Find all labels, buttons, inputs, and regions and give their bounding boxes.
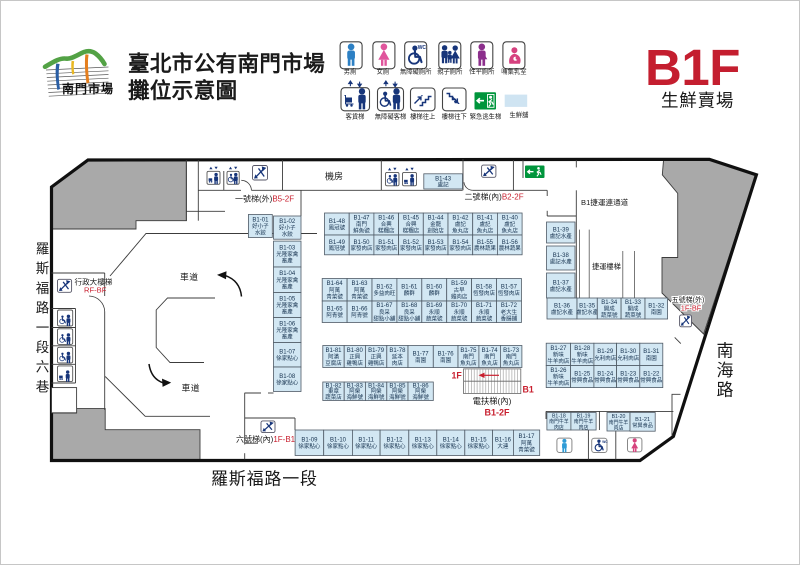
svg-text:雞鴨店: 雞鴨店 bbox=[347, 359, 364, 367]
svg-text:1F: 1F bbox=[452, 371, 463, 381]
svg-text:B1-30: B1-30 bbox=[620, 349, 637, 355]
svg-text:海鮮號: 海鮮號 bbox=[347, 393, 364, 401]
svg-text:肉店: 肉店 bbox=[392, 359, 404, 367]
svg-text:新味: 新味 bbox=[577, 350, 589, 358]
svg-text:B1-25: B1-25 bbox=[574, 371, 591, 377]
svg-text:阿青號: 阿青號 bbox=[326, 311, 343, 319]
svg-text:阿萬: 阿萬 bbox=[329, 286, 341, 294]
svg-text:女廁: 女廁 bbox=[377, 67, 390, 76]
svg-text:車道: 車道 bbox=[182, 382, 201, 393]
svg-text:B1-01: B1-01 bbox=[252, 217, 269, 223]
svg-text:WC: WC bbox=[418, 45, 427, 51]
svg-text:蔬菜店: 蔬菜店 bbox=[325, 393, 342, 401]
svg-text:盧記水產: 盧記水產 bbox=[550, 232, 573, 240]
svg-text:盧記水產: 盧記水產 bbox=[576, 308, 599, 316]
svg-text:南園: 南園 bbox=[440, 356, 452, 364]
svg-text:雞鴨店: 雞鴨店 bbox=[368, 359, 385, 367]
svg-text:一: 一 bbox=[36, 320, 50, 335]
svg-text:良采: 良采 bbox=[379, 308, 391, 316]
svg-text:徐家點心: 徐家點心 bbox=[276, 379, 299, 387]
svg-text:金龍: 金龍 bbox=[430, 220, 442, 228]
svg-text:B1-33: B1-33 bbox=[625, 300, 642, 306]
svg-text:水餃: 水餃 bbox=[255, 229, 267, 237]
svg-text:男廁: 男廁 bbox=[344, 67, 357, 76]
svg-text:捷運樓梯: 捷運樓梯 bbox=[592, 262, 621, 271]
svg-text:盧記: 盧記 bbox=[479, 220, 491, 228]
svg-text:B1-80: B1-80 bbox=[347, 348, 364, 354]
svg-text:B1-22: B1-22 bbox=[643, 371, 660, 377]
svg-text:雞肉店: 雞肉店 bbox=[451, 292, 468, 300]
svg-text:B1-34: B1-34 bbox=[601, 300, 618, 306]
svg-text:B1-79: B1-79 bbox=[368, 348, 385, 354]
svg-text:蔬菜號: 蔬菜號 bbox=[625, 311, 642, 319]
svg-text:阿萬: 阿萬 bbox=[354, 286, 366, 294]
svg-text:南門: 南門 bbox=[506, 353, 518, 361]
svg-text:車道: 車道 bbox=[180, 271, 199, 282]
svg-text:盧記水產: 盧記水產 bbox=[550, 285, 573, 293]
svg-text:魚丸店: 魚丸店 bbox=[502, 227, 519, 235]
svg-text:合興: 合興 bbox=[381, 220, 393, 228]
svg-text:客貨梯: 客貨梯 bbox=[346, 112, 365, 121]
svg-text:B1-03: B1-03 bbox=[279, 246, 296, 252]
svg-text:1F-BF: 1F-BF bbox=[681, 304, 702, 313]
svg-text:新味: 新味 bbox=[553, 373, 565, 381]
svg-text:農林蔬果: 農林蔬果 bbox=[474, 244, 497, 252]
svg-text:B1-63: B1-63 bbox=[351, 281, 368, 287]
svg-text:B1-68: B1-68 bbox=[401, 303, 418, 309]
svg-text:羅: 羅 bbox=[36, 242, 50, 257]
svg-text:B1-38: B1-38 bbox=[553, 253, 570, 259]
svg-text:B1-61: B1-61 bbox=[401, 285, 418, 291]
svg-text:徐家點心: 徐家點心 bbox=[412, 442, 435, 450]
svg-text:路: 路 bbox=[36, 301, 50, 316]
svg-text:南門牛羊: 南門牛羊 bbox=[574, 418, 594, 425]
svg-text:開成: 開成 bbox=[627, 305, 639, 313]
svg-text:南門: 南門 bbox=[356, 220, 368, 228]
svg-text:常興食品: 常興食品 bbox=[632, 421, 653, 429]
svg-text:B1-19: B1-19 bbox=[577, 414, 591, 420]
svg-text:鳳冠號: 鳳冠號 bbox=[329, 223, 346, 231]
svg-text:B1-27: B1-27 bbox=[550, 346, 567, 352]
svg-text:B1-46: B1-46 bbox=[378, 215, 395, 221]
svg-text:臺北市公有南門市場: 臺北市公有南門市場 bbox=[128, 51, 325, 76]
svg-text:盧記: 盧記 bbox=[437, 180, 449, 188]
svg-text:延本: 延本 bbox=[392, 353, 404, 361]
svg-text:允利肉店: 允利肉店 bbox=[594, 354, 617, 362]
svg-text:牛羊肉店: 牛羊肉店 bbox=[571, 357, 594, 365]
svg-text:羅斯福路一段: 羅斯福路一段 bbox=[211, 470, 318, 489]
svg-text:常興食品: 常興食品 bbox=[571, 376, 594, 384]
svg-text:肉店: 肉店 bbox=[614, 424, 624, 431]
svg-text:牛羊肉店: 牛羊肉店 bbox=[547, 379, 570, 387]
svg-text:阿滿: 阿滿 bbox=[328, 353, 340, 361]
svg-text:段: 段 bbox=[36, 340, 50, 355]
svg-text:南門: 南門 bbox=[463, 353, 475, 361]
svg-text:海鮮號: 海鮮號 bbox=[368, 393, 385, 401]
svg-text:麟群: 麟群 bbox=[404, 289, 416, 297]
svg-text:恆發肉店: 恆發肉店 bbox=[473, 289, 496, 297]
svg-text:好小子: 好小子 bbox=[279, 224, 296, 232]
svg-text:B1-72: B1-72 bbox=[501, 303, 518, 309]
svg-text:鮮魚號: 鮮魚號 bbox=[353, 227, 370, 235]
svg-text:盧記: 盧記 bbox=[504, 220, 516, 228]
svg-text:斯: 斯 bbox=[36, 261, 50, 276]
svg-text:海鮮號: 海鮮號 bbox=[389, 393, 406, 401]
svg-text:B1捷運連通道: B1捷運連通道 bbox=[581, 197, 629, 207]
svg-text:家發肉店: 家發肉店 bbox=[350, 244, 373, 252]
svg-text:糕糰店: 糕糰店 bbox=[378, 227, 395, 235]
svg-text:B1-42: B1-42 bbox=[452, 215, 469, 221]
svg-text:魚丸店: 魚丸店 bbox=[481, 359, 498, 367]
svg-text:正興: 正興 bbox=[349, 353, 361, 361]
svg-text:海: 海 bbox=[717, 361, 734, 380]
svg-text:良采: 良采 bbox=[404, 308, 416, 316]
svg-text:RF-BF: RF-BF bbox=[84, 286, 107, 295]
svg-text:南門牛羊: 南門牛羊 bbox=[549, 418, 569, 425]
svg-text:常興食品: 常興食品 bbox=[640, 376, 663, 384]
svg-text:魚丸店: 魚丸店 bbox=[452, 227, 469, 235]
svg-text:肉店: 肉店 bbox=[579, 424, 589, 431]
svg-text:家發肉店: 家發肉店 bbox=[400, 244, 423, 252]
svg-text:開成: 開成 bbox=[604, 305, 616, 313]
svg-text:光隆家禽: 光隆家禽 bbox=[276, 276, 299, 284]
svg-text:魚丸店: 魚丸店 bbox=[460, 359, 477, 367]
svg-text:二號梯(內)B2-2F: 二號梯(內)B2-2F bbox=[465, 192, 524, 202]
svg-text:B1-64: B1-64 bbox=[327, 281, 344, 287]
svg-text:無障礙客梯: 無障礙客梯 bbox=[375, 112, 406, 121]
svg-text:徐家點心: 徐家點心 bbox=[298, 442, 321, 450]
svg-text:南園: 南園 bbox=[415, 356, 427, 364]
svg-text:盧記水產: 盧記水產 bbox=[550, 257, 573, 265]
svg-text:B1-24: B1-24 bbox=[597, 371, 614, 377]
svg-text:樓梯往下: 樓梯往下 bbox=[442, 112, 467, 121]
svg-text:好小子: 好小子 bbox=[252, 222, 269, 230]
svg-text:B1-37: B1-37 bbox=[553, 280, 570, 286]
svg-text:B1-57: B1-57 bbox=[501, 285, 518, 291]
svg-text:B1-78: B1-78 bbox=[389, 348, 406, 354]
svg-text:牛羊肉店: 牛羊肉店 bbox=[547, 357, 570, 365]
svg-text:WC: WC bbox=[602, 440, 608, 444]
svg-text:性平廁所: 性平廁所 bbox=[469, 67, 495, 76]
svg-text:B1-13: B1-13 bbox=[415, 438, 432, 444]
svg-text:B1-07: B1-07 bbox=[279, 350, 296, 356]
svg-text:B1-77: B1-77 bbox=[413, 351, 430, 357]
svg-text:B1-60: B1-60 bbox=[426, 285, 443, 291]
svg-text:B1-45: B1-45 bbox=[403, 215, 420, 221]
svg-text:B1-41: B1-41 bbox=[477, 215, 494, 221]
svg-text:肉店: 肉店 bbox=[554, 424, 564, 431]
svg-text:生鮮舖: 生鮮舖 bbox=[510, 110, 530, 119]
svg-text:恆發肉店: 恆發肉店 bbox=[498, 289, 521, 297]
svg-text:B1-35: B1-35 bbox=[579, 303, 596, 309]
svg-text:B1-10: B1-10 bbox=[330, 438, 347, 444]
svg-text:畜產: 畜產 bbox=[282, 308, 294, 316]
svg-text:B1-81: B1-81 bbox=[325, 348, 342, 354]
svg-text:永順: 永順 bbox=[429, 308, 441, 316]
svg-text:農林蔬果: 農林蔬果 bbox=[499, 244, 522, 252]
svg-text:阿青號: 阿青號 bbox=[351, 311, 368, 319]
svg-text:攤位示意圖: 攤位示意圖 bbox=[128, 78, 238, 103]
svg-text:多益肉旺: 多益肉旺 bbox=[373, 289, 396, 297]
svg-text:一號梯(外)B5-2F: 一號梯(外)B5-2F bbox=[235, 194, 294, 204]
svg-text:徐家點心: 徐家點心 bbox=[440, 442, 463, 450]
svg-text:青菜號: 青菜號 bbox=[326, 292, 343, 300]
svg-text:家發肉店: 家發肉店 bbox=[425, 244, 448, 252]
svg-text:巷: 巷 bbox=[36, 379, 50, 394]
svg-text:B1-31: B1-31 bbox=[643, 349, 660, 355]
svg-text:B1-65: B1-65 bbox=[327, 307, 344, 313]
svg-text:B1-75: B1-75 bbox=[460, 348, 477, 354]
svg-text:蔬菜號: 蔬菜號 bbox=[601, 311, 618, 319]
svg-text:甜點小舖: 甜點小舖 bbox=[373, 314, 396, 322]
svg-text:哺集乳室: 哺集乳室 bbox=[501, 67, 526, 76]
svg-text:B1-58: B1-58 bbox=[476, 285, 493, 291]
svg-text:蔬菜號: 蔬菜號 bbox=[476, 314, 493, 322]
svg-text:永順: 永順 bbox=[478, 308, 490, 316]
svg-text:光隆家禽: 光隆家禽 bbox=[276, 326, 299, 334]
svg-text:盧記水產: 盧記水產 bbox=[551, 308, 574, 316]
svg-text:B1-44: B1-44 bbox=[428, 215, 445, 221]
svg-text:B1-05: B1-05 bbox=[279, 296, 296, 302]
svg-text:樓梯往上: 樓梯往上 bbox=[410, 112, 435, 121]
svg-text:B1-66: B1-66 bbox=[351, 307, 368, 313]
svg-text:B1-59: B1-59 bbox=[451, 281, 468, 287]
svg-text:大連: 大連 bbox=[497, 442, 509, 450]
svg-text:光隆家禽: 光隆家禽 bbox=[276, 301, 299, 309]
svg-text:青菜號: 青菜號 bbox=[351, 292, 368, 300]
svg-text:徐家點心: 徐家點心 bbox=[468, 442, 491, 450]
svg-text:B1-62: B1-62 bbox=[376, 285, 393, 291]
svg-text:B1-02: B1-02 bbox=[279, 219, 296, 225]
svg-text:南: 南 bbox=[717, 342, 734, 361]
svg-text:B1-39: B1-39 bbox=[553, 227, 570, 233]
svg-text:南門: 南門 bbox=[484, 353, 496, 361]
svg-text:機房: 機房 bbox=[325, 171, 343, 182]
svg-text:B1-2F: B1-2F bbox=[484, 408, 510, 418]
svg-text:畜產: 畜產 bbox=[282, 257, 294, 265]
svg-text:海鮮號: 海鮮號 bbox=[412, 393, 429, 401]
svg-text:水餃: 水餃 bbox=[282, 230, 294, 238]
svg-text:B1-71: B1-71 bbox=[476, 303, 493, 309]
svg-text:鳳冠號: 鳳冠號 bbox=[329, 244, 346, 252]
svg-text:B1-28: B1-28 bbox=[574, 346, 591, 352]
svg-text:B1-70: B1-70 bbox=[451, 303, 468, 309]
svg-text:B1-40: B1-40 bbox=[502, 215, 519, 221]
svg-text:香腸鋪: 香腸鋪 bbox=[501, 314, 518, 322]
svg-text:無障礙廁所: 無障礙廁所 bbox=[400, 67, 432, 76]
svg-text:B1-11: B1-11 bbox=[358, 438, 374, 444]
svg-text:B1-74: B1-74 bbox=[482, 348, 499, 354]
svg-text:甜點小舖: 甜點小舖 bbox=[398, 314, 421, 322]
svg-text:南園: 南園 bbox=[646, 354, 658, 362]
svg-text:B1-67: B1-67 bbox=[376, 303, 393, 309]
svg-text:家發肉店: 家發肉店 bbox=[375, 244, 398, 252]
svg-text:路: 路 bbox=[717, 381, 734, 400]
svg-text:蔬菜號: 蔬菜號 bbox=[451, 314, 468, 322]
svg-text:創始店: 創始店 bbox=[427, 227, 444, 235]
svg-text:徐家點心: 徐家點心 bbox=[327, 442, 350, 450]
svg-text:電扶梯(內): 電扶梯(內) bbox=[473, 396, 512, 406]
svg-text:B1-73: B1-73 bbox=[503, 348, 520, 354]
svg-text:B1-17: B1-17 bbox=[518, 434, 535, 440]
svg-text:B1-48: B1-48 bbox=[329, 219, 346, 225]
svg-text:B1-69: B1-69 bbox=[426, 303, 443, 309]
svg-text:麟群: 麟群 bbox=[429, 289, 441, 297]
svg-text:B1-16: B1-16 bbox=[495, 438, 512, 444]
svg-text:永順: 永順 bbox=[454, 308, 466, 316]
svg-text:徐家點心: 徐家點心 bbox=[355, 442, 378, 450]
svg-text:青菜號: 青菜號 bbox=[518, 445, 535, 453]
svg-text:B1-26: B1-26 bbox=[550, 368, 567, 374]
svg-text:光隆家禽: 光隆家禽 bbox=[276, 250, 299, 258]
svg-text:魚丸店: 魚丸店 bbox=[477, 227, 494, 235]
svg-text:新味: 新味 bbox=[553, 350, 565, 358]
svg-text:親子廁所: 親子廁所 bbox=[437, 67, 463, 76]
svg-text:緊急逃生梯: 緊急逃生梯 bbox=[470, 112, 501, 121]
svg-text:B1-32: B1-32 bbox=[648, 303, 665, 309]
svg-text:盧記: 盧記 bbox=[455, 220, 467, 228]
svg-text:老大生: 老大生 bbox=[501, 308, 518, 316]
svg-text:B1-47: B1-47 bbox=[353, 215, 370, 221]
svg-text:B1-08: B1-08 bbox=[279, 374, 296, 380]
svg-text:六: 六 bbox=[36, 360, 50, 375]
svg-text:魚丸店: 魚丸店 bbox=[503, 359, 520, 367]
svg-text:南園: 南園 bbox=[651, 308, 663, 316]
svg-text:豆腐店: 豆腐店 bbox=[325, 359, 342, 367]
svg-text:生鮮賣場: 生鮮賣場 bbox=[661, 91, 734, 111]
svg-text:B1F: B1F bbox=[645, 39, 740, 96]
svg-text:南門市場: 南門市場 bbox=[62, 81, 114, 96]
svg-text:徐家點心: 徐家點心 bbox=[276, 354, 299, 362]
svg-text:B1-06: B1-06 bbox=[279, 321, 296, 327]
svg-text:阿萬: 阿萬 bbox=[521, 439, 533, 447]
svg-text:B1-04: B1-04 bbox=[279, 271, 296, 277]
svg-text:徐家點心: 徐家點心 bbox=[383, 442, 406, 450]
svg-text:古早: 古早 bbox=[454, 286, 466, 294]
svg-text:福: 福 bbox=[36, 281, 50, 296]
svg-text:常興食品: 常興食品 bbox=[617, 376, 640, 384]
svg-text:B1-20: B1-20 bbox=[612, 414, 626, 420]
svg-text:合興: 合興 bbox=[405, 220, 417, 228]
svg-text:正興: 正興 bbox=[371, 353, 383, 361]
svg-text:六號梯(內)1F-B1: 六號梯(內)1F-B1 bbox=[236, 434, 296, 444]
svg-text:B1-14: B1-14 bbox=[443, 438, 460, 444]
svg-text:B1-15: B1-15 bbox=[471, 438, 488, 444]
svg-text:B1-29: B1-29 bbox=[597, 349, 614, 355]
svg-text:糕糰店: 糕糰店 bbox=[403, 227, 420, 235]
svg-text:B1-76: B1-76 bbox=[438, 351, 455, 357]
svg-text:畜產: 畜產 bbox=[282, 333, 294, 341]
svg-text:B1-18: B1-18 bbox=[552, 414, 566, 420]
svg-text:畜產: 畜產 bbox=[282, 282, 294, 290]
svg-text:常興食品: 常興食品 bbox=[594, 376, 617, 384]
svg-text:B1: B1 bbox=[523, 385, 534, 395]
svg-text:家發肉店: 家發肉店 bbox=[449, 244, 472, 252]
svg-text:B1-23: B1-23 bbox=[620, 371, 637, 377]
svg-text:蔬菜號: 蔬菜號 bbox=[426, 314, 443, 322]
svg-text:允利肉店: 允利肉店 bbox=[617, 354, 640, 362]
svg-text:南門牛羊: 南門牛羊 bbox=[609, 419, 629, 426]
svg-text:B1-09: B1-09 bbox=[301, 438, 318, 444]
svg-text:B1-12: B1-12 bbox=[386, 438, 403, 444]
svg-text:B1-36: B1-36 bbox=[554, 303, 571, 309]
